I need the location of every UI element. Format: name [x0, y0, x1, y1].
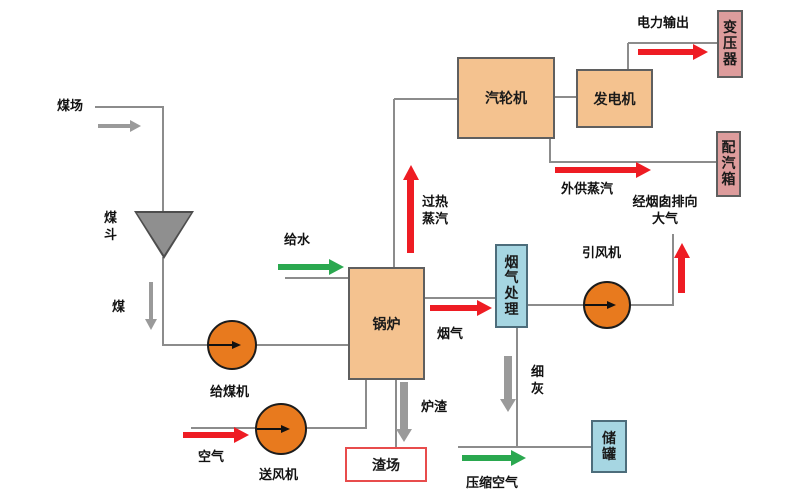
superheated-steam-arrow	[402, 165, 419, 253]
line-fine-ash-down	[516, 328, 518, 448]
coal-yard-label: 煤场	[57, 98, 83, 115]
line-feedwater	[285, 277, 348, 279]
external-steam-label: 外供蒸汽	[561, 181, 613, 198]
fan-arrow-icon	[607, 301, 616, 309]
coal-label: 煤	[112, 299, 125, 316]
id-fan-label: 引风机	[582, 245, 621, 262]
line-air-to-boiler-v	[365, 380, 367, 428]
superheated-steam-label: 过热蒸汽	[421, 194, 449, 228]
coal-hopper-fill	[137, 213, 191, 255]
generator-label: 发电机	[594, 89, 636, 109]
fan-arrow-icon	[281, 425, 290, 433]
line-turbine-generator	[555, 96, 576, 98]
flue-gas-treatment-box: 烟气处理	[495, 244, 528, 328]
fan-axis-line	[257, 428, 283, 430]
flue-gas-treatment-label: 烟气处理	[504, 255, 519, 318]
coal-yard-arrow	[98, 119, 141, 132]
coal-feeder-node	[207, 320, 257, 370]
fine-ash-label: 细灰	[530, 364, 545, 398]
fine-ash-arrow	[500, 356, 516, 412]
fan-axis-line	[209, 344, 234, 346]
line-boiler-to-treatment	[425, 297, 495, 299]
turbine-box: 汽轮机	[457, 57, 555, 139]
boiler-label: 锅炉	[373, 314, 401, 334]
external-steam-arrow	[555, 162, 651, 178]
power-output-arrow	[638, 44, 708, 60]
transformer-label: 变压器	[723, 20, 738, 67]
line-compressed-air	[458, 446, 591, 448]
line-hopper-down	[162, 257, 164, 346]
storage-tank-label: 储罐	[602, 431, 617, 462]
fan-axis-line	[585, 304, 609, 306]
slag-arrow	[395, 382, 412, 442]
line-coalyard-top	[95, 106, 163, 108]
turbine-label: 汽轮机	[485, 88, 527, 108]
slag-yard-box: 渣场	[345, 447, 427, 482]
diagram-canvas: 锅炉 汽轮机 发电机 变压器 配汽箱 烟气处理 储罐 渣场	[0, 0, 800, 500]
coal-down-arrow	[144, 282, 157, 330]
coal-feeder-label: 给煤机	[210, 384, 249, 401]
slag-yard-label: 渣场	[372, 455, 400, 475]
steam-distributor-label: 配汽箱	[721, 140, 736, 187]
line-coalyard-down	[162, 106, 164, 211]
line-steam-v	[393, 99, 395, 267]
air-arrow	[183, 427, 249, 443]
generator-box: 发电机	[576, 69, 653, 128]
chimney-exhaust-label: 经烟囱排向大气	[630, 194, 700, 228]
compressed-air-arrow	[462, 450, 526, 466]
flue-gas-arrow	[430, 300, 492, 316]
flue-gas-label: 烟气	[437, 326, 463, 343]
boiler-box: 锅炉	[348, 267, 425, 380]
fd-fan-node	[255, 403, 307, 455]
coal-hopper-label: 煤斗	[103, 210, 118, 244]
storage-tank-box: 储罐	[591, 420, 627, 473]
feed-water-label: 给水	[284, 232, 310, 249]
id-fan-node	[583, 281, 631, 329]
transformer-box: 变压器	[717, 10, 743, 78]
line-generator-up	[627, 43, 629, 69]
steam-distributor-box: 配汽箱	[716, 131, 741, 197]
feedwater-arrow	[278, 259, 344, 275]
line-turbine-down	[549, 139, 551, 163]
compressed-air-label: 压缩空气	[466, 475, 518, 492]
slag-label: 炉渣	[421, 399, 447, 416]
air-label: 空气	[198, 449, 224, 466]
fan-arrow-icon	[232, 341, 241, 349]
fd-fan-label: 送风机	[259, 467, 298, 484]
power-output-label: 电力输出	[637, 15, 689, 32]
chimney-arrow	[673, 243, 690, 293]
line-steam-h	[394, 98, 457, 100]
